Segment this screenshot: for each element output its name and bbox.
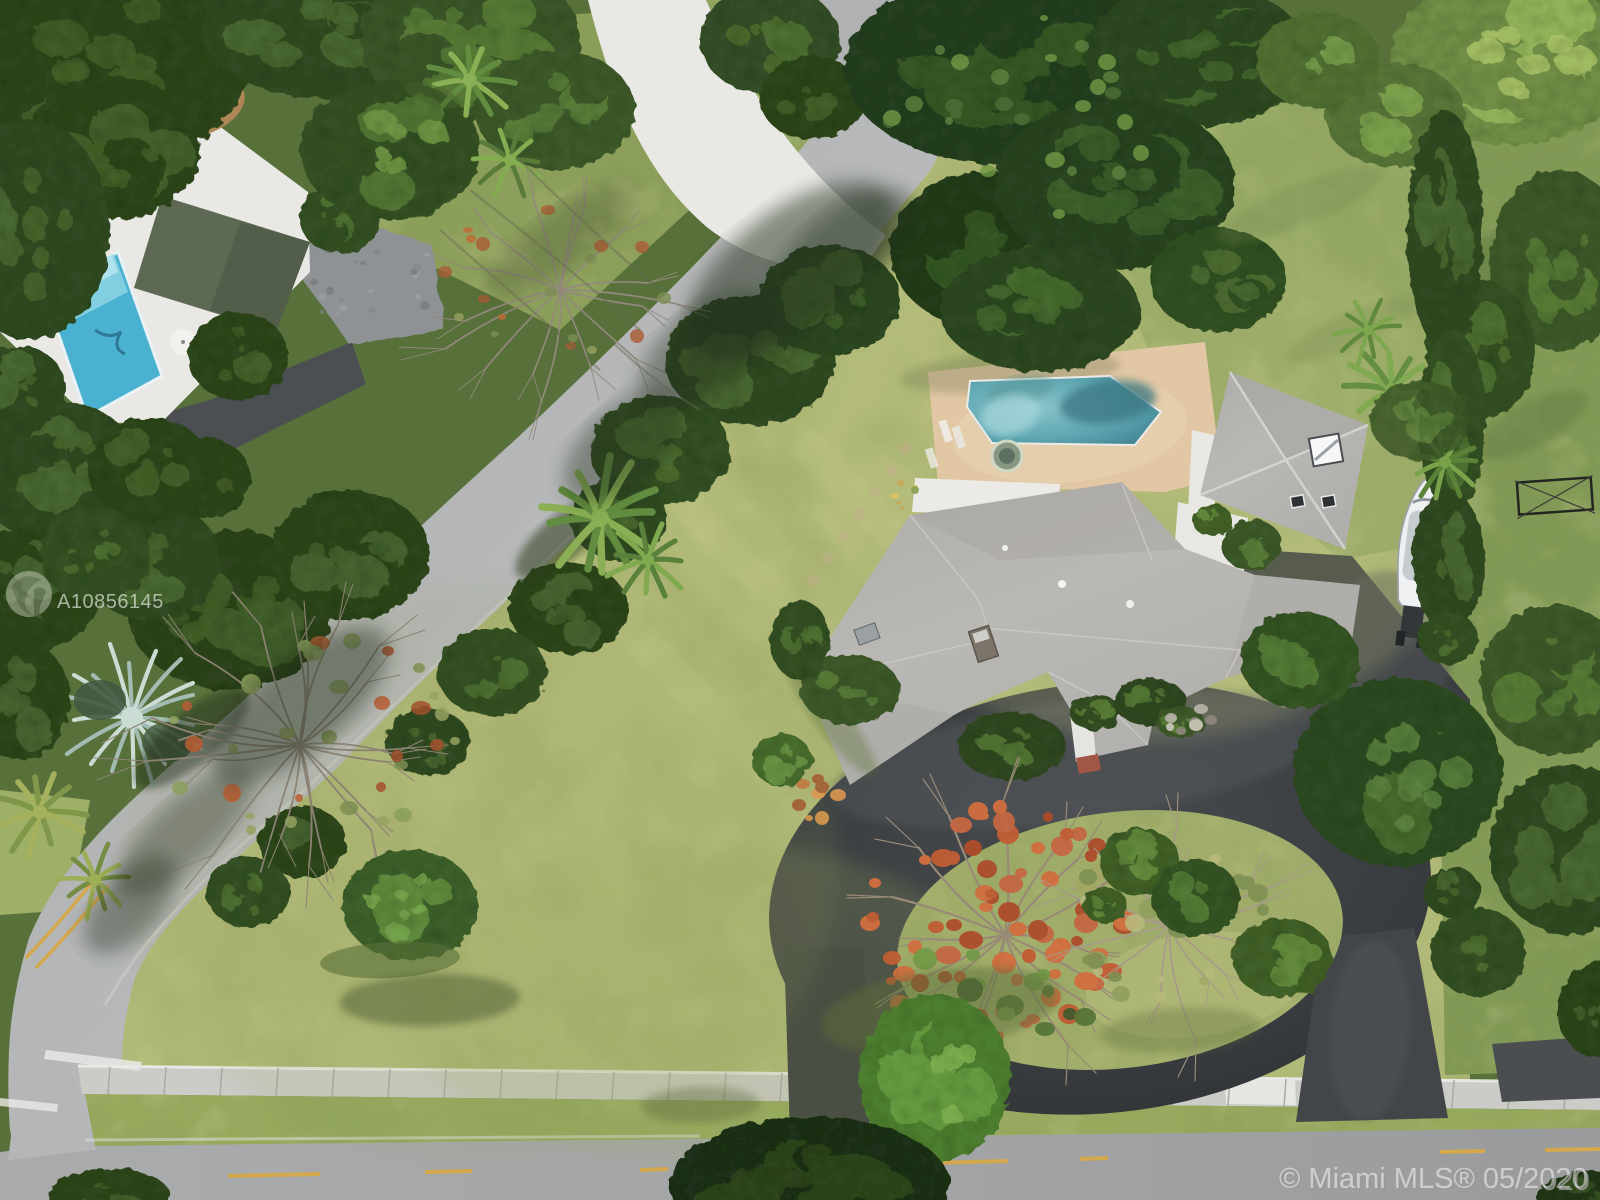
svg-text:© Miami MLS® 05/2020: © Miami MLS® 05/2020 <box>1279 1163 1588 1195</box>
svg-text:A10856145: A10856145 <box>57 591 164 613</box>
